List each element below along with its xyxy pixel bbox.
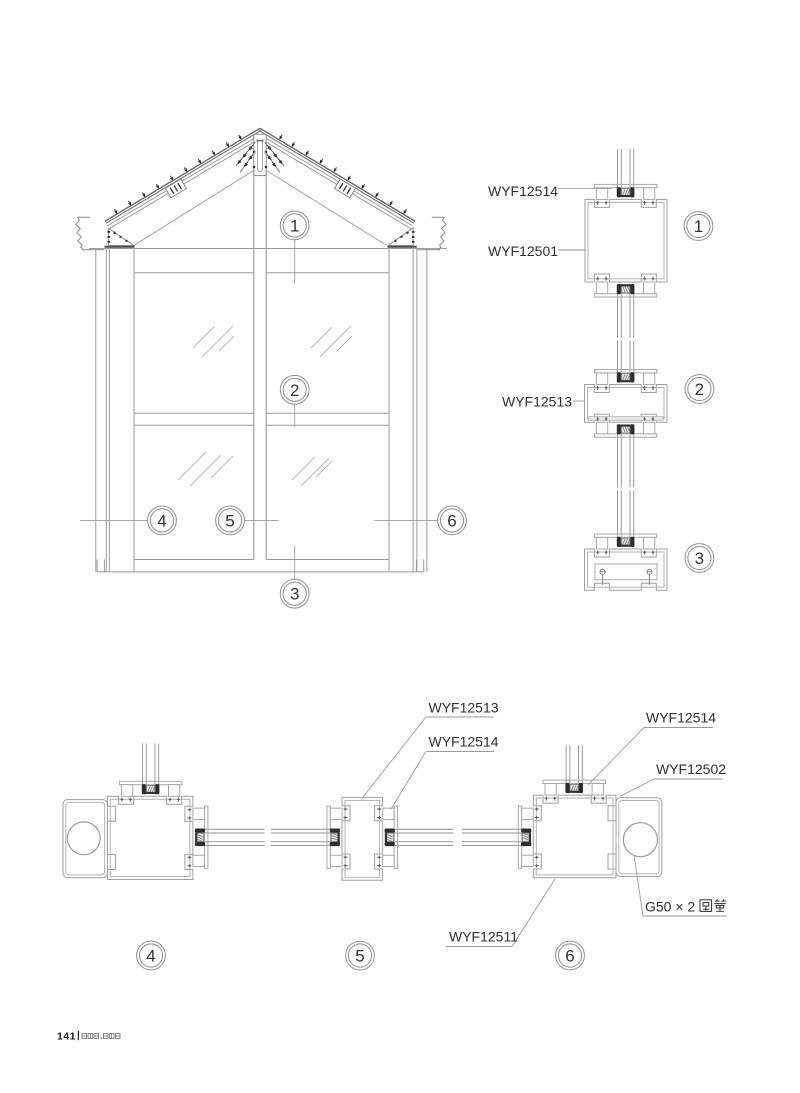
svg-text:4: 4	[157, 511, 166, 530]
svg-text:5: 5	[355, 947, 364, 966]
svg-text:4: 4	[146, 947, 155, 966]
svg-text:WYF12514: WYF12514	[429, 734, 499, 750]
svg-text:5: 5	[225, 511, 234, 530]
svg-text:6: 6	[447, 511, 456, 530]
svg-text:141: 141	[57, 1031, 76, 1043]
svg-text:1: 1	[290, 216, 299, 235]
svg-text:2: 2	[695, 380, 704, 399]
svg-text:WYF12511: WYF12511	[449, 929, 518, 945]
svg-text:WYF12513: WYF12513	[429, 700, 499, 716]
svg-text:G50 × 2: G50 × 2	[645, 899, 695, 915]
svg-text:WYF12501: WYF12501	[488, 243, 558, 259]
svg-text:3: 3	[695, 549, 704, 568]
svg-text:6: 6	[565, 947, 574, 966]
svg-text:3: 3	[290, 585, 299, 604]
svg-text:WYF12514: WYF12514	[488, 183, 558, 199]
svg-text:WYF12514: WYF12514	[646, 710, 716, 726]
svg-text:1: 1	[694, 217, 703, 236]
svg-text:WYF12502: WYF12502	[656, 761, 726, 777]
svg-text:2: 2	[290, 381, 299, 400]
svg-text:WYF12513: WYF12513	[502, 394, 572, 410]
